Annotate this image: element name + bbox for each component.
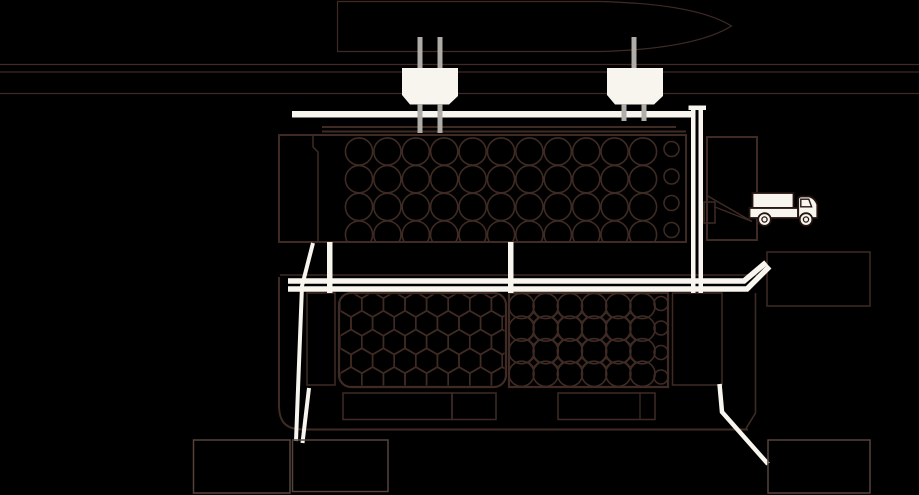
- service-pipe-left-2: [303, 388, 310, 443]
- log-circle: [516, 138, 543, 165]
- log-circle-small: [654, 346, 668, 360]
- log-circle: [345, 193, 372, 220]
- facility-schematic-stage: [0, 0, 919, 495]
- hopper2-pipe-top: [632, 37, 637, 69]
- log-circle: [487, 193, 514, 220]
- log-circle: [431, 166, 458, 193]
- log-circle: [459, 138, 486, 165]
- hopper1-pipe-top-left: [418, 37, 423, 69]
- log-stack-lower: [509, 293, 655, 386]
- left-bin-outline: [339, 293, 506, 387]
- hex-log-cell: [427, 367, 449, 392]
- log-circle: [533, 316, 558, 341]
- log-circle: [557, 316, 582, 341]
- hex-log-cell: [470, 367, 492, 392]
- log-circle: [431, 193, 458, 220]
- log-circle: [374, 166, 401, 193]
- log-circle: [573, 166, 600, 193]
- side-building-right: [767, 252, 870, 306]
- chute-diagonal-2: [715, 207, 752, 222]
- log-circle: [516, 193, 543, 220]
- machine-room-a: [343, 393, 452, 420]
- hex-log-cell: [362, 367, 384, 392]
- log-circle: [557, 361, 582, 386]
- lower-container-right-outline: [746, 293, 756, 429]
- log-circle-small: [654, 370, 668, 384]
- log-circle: [402, 138, 429, 165]
- hopper1-leg-left: [418, 104, 423, 133]
- hex-log-cell: [340, 367, 362, 392]
- log-circle: [582, 316, 607, 341]
- log-circle: [557, 293, 582, 318]
- log-circle: [402, 166, 429, 193]
- hex-log-cell: [448, 367, 470, 392]
- hopper2-leg-right: [642, 104, 647, 121]
- log-circle: [630, 361, 655, 386]
- truck-wheel-rear: [758, 213, 771, 226]
- log-circle: [431, 138, 458, 165]
- log-circle: [582, 339, 607, 364]
- log-circle: [345, 166, 372, 193]
- log-circle: [573, 138, 600, 165]
- log-circle: [544, 166, 571, 193]
- log-circle: [402, 193, 429, 220]
- log-circle: [509, 339, 534, 364]
- log-circle: [601, 193, 628, 220]
- log-circle: [629, 138, 656, 165]
- log-circle: [509, 316, 534, 341]
- right-vertical-pipe-b: [699, 108, 704, 293]
- log-circle: [487, 138, 514, 165]
- service-pipe-right: [720, 384, 769, 464]
- hex-log-cell: [405, 367, 427, 392]
- log-circle: [509, 361, 534, 386]
- log-circle: [629, 193, 656, 220]
- log-circle: [431, 221, 458, 248]
- log-circle: [601, 166, 628, 193]
- hex-log-stack: [329, 292, 523, 392]
- hopper2-leg-left: [622, 104, 627, 121]
- lower-right-cell: [673, 293, 723, 385]
- log-circle: [601, 138, 628, 165]
- hex-log-cell: [383, 367, 405, 392]
- hopper-icon-2: [607, 68, 663, 105]
- log-circle: [374, 193, 401, 220]
- basement-room-right: [768, 440, 870, 493]
- log-circle: [629, 166, 656, 193]
- log-circle: [601, 221, 628, 248]
- log-circle: [516, 221, 543, 248]
- hopper-icon-1: [402, 68, 458, 105]
- log-circle: [630, 339, 655, 364]
- right-vertical-pipe-a: [691, 108, 696, 293]
- top-container-divider: [313, 135, 318, 242]
- log-circle: [345, 221, 372, 248]
- log-circle: [573, 221, 600, 248]
- log-circle: [606, 361, 631, 386]
- log-circle: [630, 316, 655, 341]
- log-circle: [459, 166, 486, 193]
- facility-diagram: [0, 0, 919, 495]
- truck-cargo-box: [753, 193, 794, 208]
- ship-bow-icon: [338, 2, 732, 52]
- log-stack-top: [345, 138, 656, 248]
- log-circle: [544, 193, 571, 220]
- upper-conveyor-pipe: [292, 111, 694, 118]
- hopper1-pipe-top-right: [438, 37, 443, 69]
- truck-bed: [750, 208, 799, 218]
- basement-room-left-1: [194, 440, 291, 493]
- log-circle-small: [664, 169, 679, 184]
- log-circle-small: [654, 321, 668, 335]
- log-circle: [573, 193, 600, 220]
- log-circle: [544, 221, 571, 248]
- log-circle: [533, 339, 558, 364]
- log-circle: [606, 293, 631, 318]
- truck-wheel-front: [800, 213, 813, 226]
- log-circle: [459, 193, 486, 220]
- loading-bay-outline: [707, 137, 757, 240]
- log-circle: [402, 221, 429, 248]
- log-circle: [606, 316, 631, 341]
- log-circle-small: [654, 297, 668, 311]
- log-circle: [582, 361, 607, 386]
- log-circle: [374, 138, 401, 165]
- log-circle: [516, 166, 543, 193]
- log-circle: [606, 339, 631, 364]
- log-circle: [533, 361, 558, 386]
- log-circle-small: [664, 196, 679, 211]
- mid-vertical-bar-2: [508, 242, 514, 293]
- log-circle: [509, 293, 534, 318]
- log-circle: [374, 221, 401, 248]
- interstice-diamonds: [529, 313, 635, 367]
- log-circle: [487, 166, 514, 193]
- log-circle: [544, 138, 571, 165]
- chute-box: [704, 202, 715, 223]
- log-stack-top-small: [664, 142, 679, 238]
- log-circle: [582, 293, 607, 318]
- basement-room-left-2: [293, 440, 389, 492]
- log-circle: [630, 293, 655, 318]
- mid-conveyor-line-2: [288, 267, 770, 290]
- lower-left-cell: [307, 293, 335, 385]
- log-circle: [533, 293, 558, 318]
- chute-diagonal-1: [706, 195, 752, 222]
- log-circle: [557, 339, 582, 364]
- log-circle: [459, 221, 486, 248]
- log-circle: [345, 138, 372, 165]
- machine-room-b: [452, 393, 496, 420]
- log-stack-lower-small: [654, 297, 668, 385]
- log-circle: [629, 221, 656, 248]
- hopper1-leg-right: [438, 104, 443, 133]
- log-circle-small: [664, 142, 679, 157]
- mid-vertical-bar-1: [327, 242, 333, 293]
- log-circle-small: [664, 223, 679, 238]
